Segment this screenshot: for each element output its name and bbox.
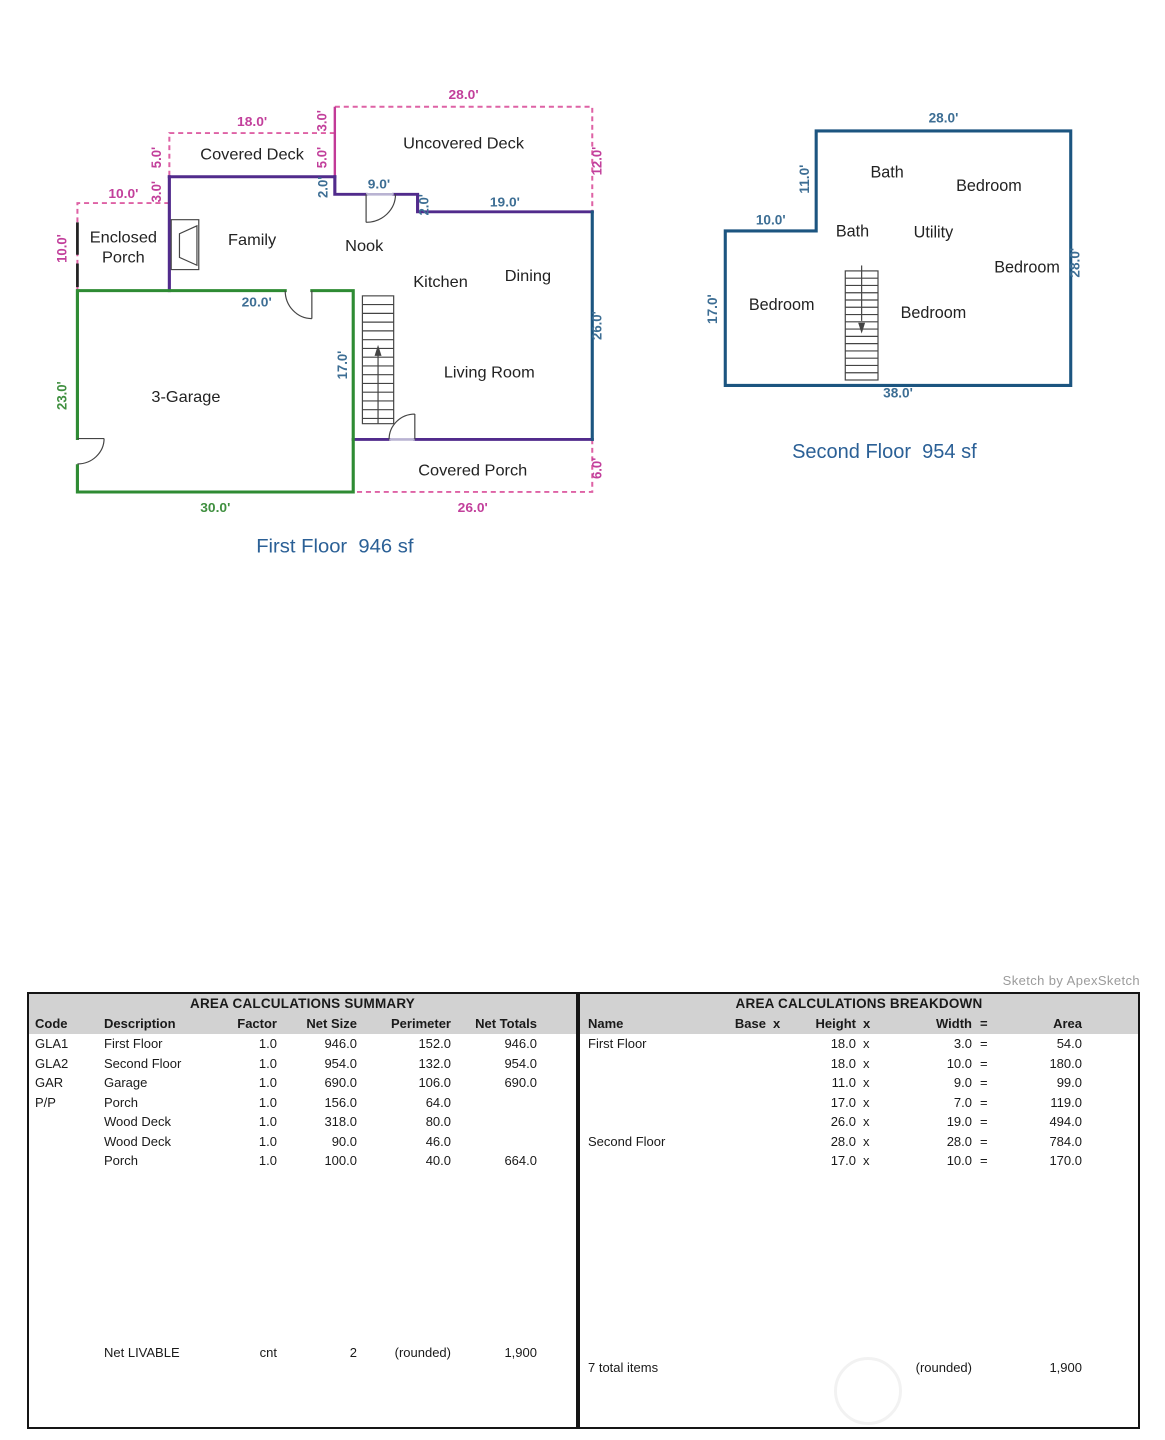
table-row: GLA2 Second Floor 1.0 954.0 132.0 954.0: [29, 1054, 576, 1074]
room-label-enclosed-porch-1: Enclosed: [90, 230, 157, 247]
dim-left-step: 10.0': [756, 213, 786, 228]
dim-garage-top: 20.0': [242, 295, 272, 310]
room-label-bedroom-tr: Bedroom: [956, 177, 1022, 195]
cell-net-totals: 690.0: [29, 1073, 537, 1093]
dim-garage-left: 23.0': [54, 381, 69, 410]
room-label-covered-porch: Covered Porch: [418, 463, 527, 480]
cell-net-totals: 954.0: [29, 1054, 537, 1074]
second-floor-title: Second Floor 954 sf: [792, 441, 977, 463]
dim-deck5-right: 5.0': [314, 147, 329, 168]
room-label-nook: Nook: [345, 239, 383, 256]
appraisal-sketch-page: Covered Deck Uncovered Deck Enclosed Por…: [0, 0, 1165, 1440]
table-row: P/P Porch 1.0 156.0 64.0: [29, 1093, 576, 1113]
dim-nook-step-right: 2.0': [416, 194, 431, 215]
dim-left: 17.0': [705, 294, 720, 324]
room-label-uncovered-deck: Uncovered Deck: [403, 136, 524, 153]
dim-step3-left: 3.0': [149, 181, 164, 202]
table-row: Wood Deck 1.0 318.0 80.0: [29, 1112, 576, 1132]
sketch-credit: Sketch by ApexSketch: [900, 973, 1140, 988]
room-label-bedroom-right: Bedroom: [994, 259, 1060, 277]
table-row: 17.0 x 7.0 = 119.0: [580, 1093, 1138, 1113]
table-row: 26.0 x 19.0 = 494.0: [580, 1112, 1138, 1132]
first-floor-walls: [77, 177, 592, 492]
breakdown-table-header: Name Base x Height x Width = Area: [580, 1014, 1138, 1034]
room-label-covered-deck: Covered Deck: [200, 147, 304, 164]
garage-side-door-swing: [77, 439, 104, 464]
second-floor-room-labels: Bath Bedroom Bath Utility Bedroom Bedroo…: [749, 163, 1060, 322]
room-label-enclosed-porch-2: Porch: [102, 250, 145, 267]
dim-upper-left: 11.0': [797, 165, 812, 194]
first-floor-stairs: [362, 296, 393, 424]
cell-area: 494.0: [580, 1112, 1082, 1132]
cell-net-totals: 946.0: [29, 1034, 537, 1054]
cell-net-totals: 664.0: [29, 1151, 537, 1171]
dim-step3-right: 3.0': [314, 110, 329, 131]
dim-porch-top: 10.0': [108, 186, 138, 201]
garage-interior-door-swing: [285, 291, 312, 319]
room-label-bedroom-center: Bedroom: [901, 304, 967, 322]
dim-deck-top: 28.0': [448, 87, 478, 102]
table-row: Wood Deck 1.0 90.0 46.0: [29, 1132, 576, 1152]
cell-area: 119.0: [580, 1093, 1082, 1113]
dim-deck5-left: 5.0': [149, 147, 164, 168]
dim-deck-right: 12.0': [589, 147, 604, 176]
nook-door-swing: [366, 194, 395, 222]
room-label-family: Family: [228, 232, 276, 249]
col-net-totals: Net Totals: [29, 1014, 537, 1034]
first-floor-title: First Floor 946 sf: [256, 536, 414, 557]
fireplace-firebox: [179, 226, 196, 265]
fireplace: [171, 220, 199, 270]
table-row: Second Floor 28.0 x 28.0 = 784.0: [580, 1132, 1138, 1152]
room-label-dining: Dining: [505, 268, 551, 285]
dim-covered-deck-top: 18.0': [237, 114, 267, 129]
dim-bottom: 38.0': [883, 385, 913, 400]
dim-garage-bottom: 30.0': [200, 500, 230, 515]
table-row: 11.0 x 9.0 = 99.0: [580, 1073, 1138, 1093]
enclosed-porch-outline: [77, 203, 169, 291]
livable-total: 1,900: [29, 1343, 537, 1363]
table-row: GAR Garage 1.0 690.0 106.0 690.0: [29, 1073, 576, 1093]
stairs-down-arrow-icon: [858, 323, 865, 334]
col-area: Area: [580, 1014, 1082, 1034]
cell-perimeter: 80.0: [29, 1112, 451, 1132]
dim-right-wall: 26.0': [589, 311, 604, 340]
room-label-bath-mid: Bath: [836, 222, 869, 240]
dim-top: 28.0': [929, 111, 959, 126]
dim-nook-step-left: 2.0': [315, 177, 330, 198]
area-calculations-breakdown-table: AREA CALCULATIONS BREAKDOWN Name Base x …: [578, 992, 1140, 1429]
stairs-up-arrow-icon: [375, 345, 382, 356]
dim-nook-opening: 9.0': [368, 177, 390, 192]
summary-table-title: AREA CALCULATIONS SUMMARY: [29, 994, 576, 1014]
room-label-kitchen: Kitchen: [413, 274, 468, 291]
table-row: First Floor 18.0 x 3.0 = 54.0: [580, 1034, 1138, 1054]
summary-table-footer: Net LIVABLE cnt 2 (rounded) 1,900: [29, 1343, 576, 1363]
room-label-garage: 3-Garage: [151, 389, 220, 406]
cell-perimeter: 46.0: [29, 1132, 451, 1152]
second-floor-plan: Bath Bedroom Bath Utility Bedroom Bedroo…: [698, 108, 1098, 472]
uncovered-deck-outline: [335, 107, 592, 212]
summary-table-header: Code Description Factor Net Size Perimet…: [29, 1014, 576, 1034]
cell-perimeter: 64.0: [29, 1093, 451, 1113]
cell-area: 170.0: [580, 1151, 1082, 1171]
dim-porch-bottom: 26.0': [458, 500, 488, 515]
table-row: GLA1 First Floor 1.0 946.0 152.0 946.0: [29, 1034, 576, 1054]
table-row: 17.0 x 10.0 = 170.0: [580, 1151, 1138, 1171]
dim-porch-right: 6.0': [589, 458, 604, 479]
table-row: Porch 1.0 100.0 40.0 664.0: [29, 1151, 576, 1171]
cell-area: 784.0: [580, 1132, 1082, 1152]
room-label-living-room: Living Room: [444, 365, 535, 382]
breakdown-total: 1,900: [580, 1358, 1082, 1378]
summary-table-body: GLA1 First Floor 1.0 946.0 152.0 946.0 G…: [29, 1034, 576, 1171]
dim-kitchen-top: 19.0': [490, 195, 520, 210]
first-floor-plan: Covered Deck Uncovered Deck Enclosed Por…: [48, 84, 618, 562]
room-label-bath-top: Bath: [870, 163, 903, 181]
breakdown-table-title: AREA CALCULATIONS BREAKDOWN: [580, 994, 1138, 1014]
dim-stair-wall: 17.0': [335, 351, 350, 380]
dim-right: 28.0': [1067, 248, 1082, 278]
cell-area: 180.0: [580, 1054, 1082, 1074]
table-row: 18.0 x 10.0 = 180.0: [580, 1054, 1138, 1074]
cell-area: 99.0: [580, 1073, 1082, 1093]
second-floor-dimensions: 28.0' 11.0' 10.0' 17.0' 28.0' 38.0': [705, 111, 1082, 401]
second-floor-stairs: [845, 265, 878, 380]
area-calculations-summary-table: AREA CALCULATIONS SUMMARY Code Descripti…: [27, 992, 578, 1429]
breakdown-table-body: First Floor 18.0 x 3.0 = 54.0 18.0 x 10.…: [580, 1034, 1138, 1171]
dim-porch-left: 10.0': [54, 234, 69, 263]
room-label-utility: Utility: [914, 223, 954, 241]
breakdown-table-footer: 7 total items (rounded) 1,900: [580, 1358, 1138, 1378]
room-label-bedroom-left: Bedroom: [749, 296, 815, 314]
cell-area: 54.0: [580, 1034, 1082, 1054]
